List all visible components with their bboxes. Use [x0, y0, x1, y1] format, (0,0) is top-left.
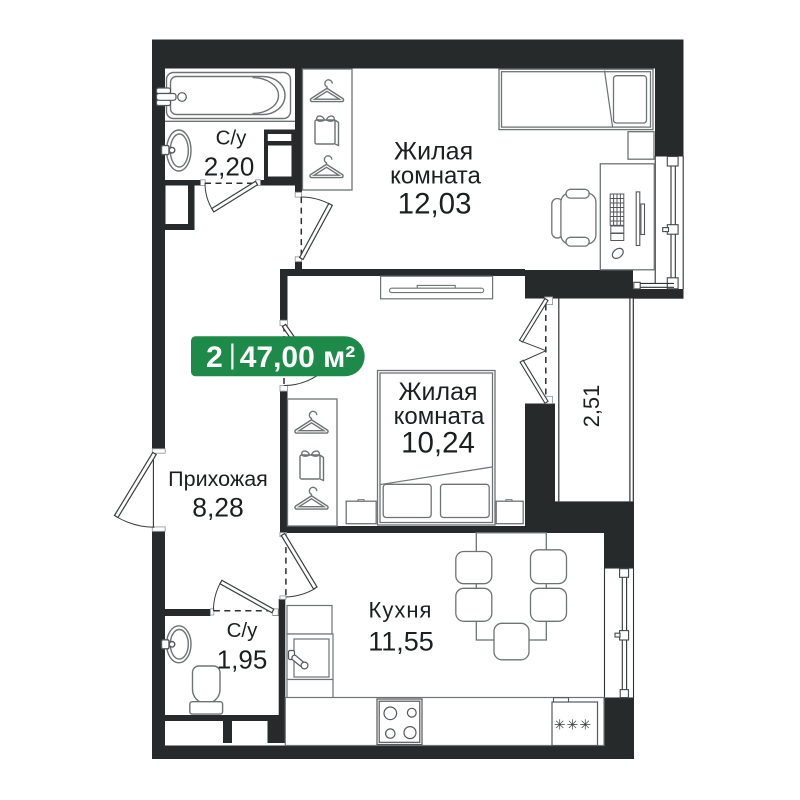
svg-text:Кухня: Кухня	[369, 598, 433, 623]
svg-text:2,51: 2,51	[579, 385, 604, 428]
svg-text:С/у: С/у	[227, 619, 259, 642]
svg-text:11,55: 11,55	[368, 627, 434, 657]
svg-text:10,24: 10,24	[401, 427, 475, 460]
svg-text:Прихожая: Прихожая	[168, 467, 268, 491]
svg-text:1,95: 1,95	[217, 645, 268, 675]
svg-text:47,00 м²: 47,00 м²	[240, 341, 356, 374]
svg-text:✳✳✳: ✳✳✳	[554, 717, 592, 733]
svg-text:2,20: 2,20	[204, 152, 255, 182]
svg-text:12,03: 12,03	[398, 188, 472, 221]
svg-text:С/у: С/у	[216, 126, 248, 149]
svg-text:комната: комната	[390, 163, 481, 190]
svg-text:8,28: 8,28	[192, 493, 244, 523]
svg-text:2: 2	[206, 341, 223, 374]
svg-text:Жилая: Жилая	[394, 138, 473, 166]
svg-text:Жилая: Жилая	[398, 378, 477, 406]
